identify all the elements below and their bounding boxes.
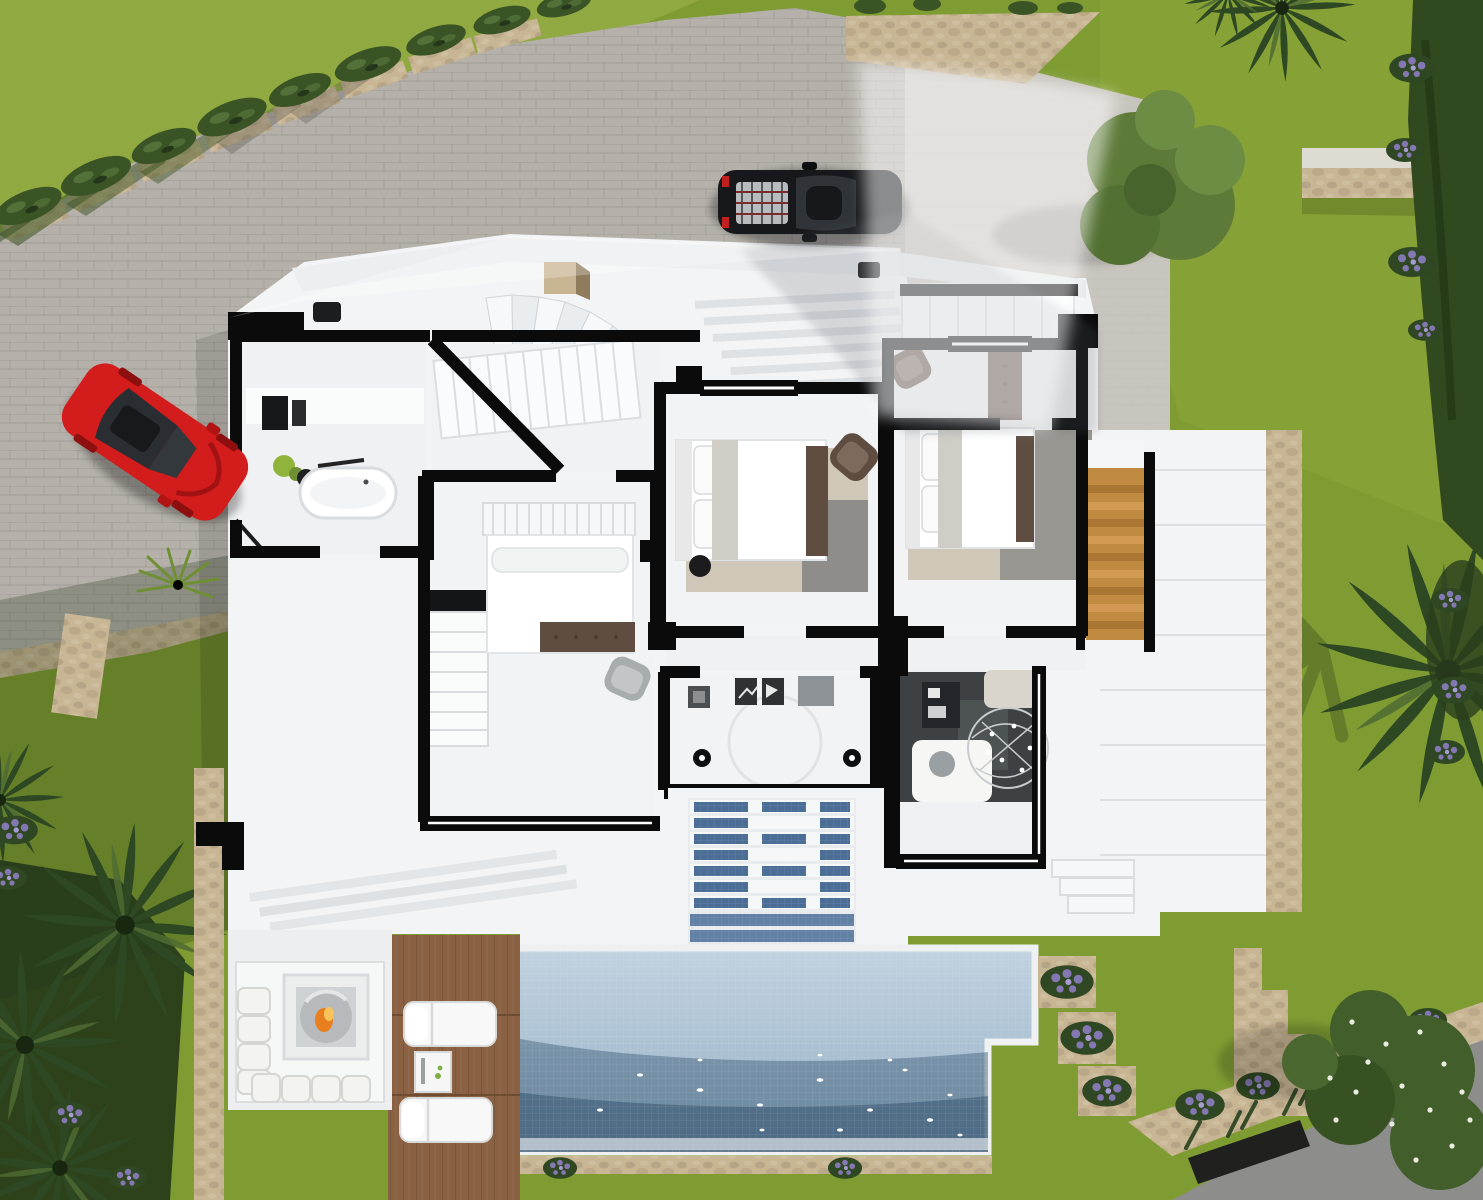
- foyer: [668, 674, 882, 790]
- black-car-mirror: [802, 162, 817, 170]
- lavender-bush: [1408, 319, 1442, 341]
- black-car-roof: [806, 186, 842, 220]
- tufted-footboard: [1016, 436, 1034, 542]
- master-bedroom: [420, 478, 654, 822]
- lavender-bush: [543, 1157, 577, 1179]
- fire-pit-platform: [228, 930, 392, 1110]
- side-pouf: [689, 555, 711, 577]
- tufted-footboard: [806, 446, 828, 556]
- console-table: [798, 676, 834, 706]
- sun-lounger: [400, 1098, 492, 1142]
- taillight: [722, 217, 729, 228]
- bolster-pillow: [492, 548, 628, 572]
- wall-shadow: [1302, 198, 1430, 216]
- pendant-lamp-inner: [693, 691, 705, 703]
- master-wardrobe: [420, 590, 488, 746]
- villa-render: Aerial top-down 3D render of a modern vi…: [0, 0, 1483, 1200]
- bedroom-a: [666, 388, 883, 626]
- pool-inner-ledge: [515, 1138, 988, 1150]
- tv-sideboard: [922, 682, 960, 728]
- lavender-bush: [828, 1157, 862, 1179]
- hallway: [666, 636, 1086, 670]
- lavender-bush: [1389, 54, 1435, 83]
- lavender-bush: [1386, 138, 1424, 162]
- lavender-bush: [109, 1166, 147, 1190]
- lavender-bush: [1388, 247, 1436, 277]
- deck-side-table: [415, 1052, 451, 1092]
- vanity-mirror: [292, 400, 306, 426]
- lavender-bush: [49, 1102, 91, 1128]
- lavender-bush: [1427, 740, 1465, 764]
- swimming-pool: [498, 948, 1035, 1179]
- sofa-cushion: [929, 751, 955, 777]
- lavender-bush: [1433, 677, 1475, 703]
- bathtub: [300, 468, 396, 518]
- cypress-top: [1057, 2, 1083, 14]
- stone-path-east-texture: [1266, 430, 1302, 912]
- lavender-bush: [1431, 588, 1469, 612]
- bed-b: [906, 428, 1034, 548]
- parapet-speaker: [313, 302, 341, 322]
- bed-a: [676, 440, 828, 560]
- fire-pit: [284, 975, 368, 1059]
- cypress-top: [1008, 1, 1038, 15]
- sun-lounger: [404, 1002, 496, 1046]
- bathroom: [236, 340, 426, 556]
- vanity-stool: [262, 396, 288, 430]
- knit-runner: [712, 440, 738, 560]
- knit-runner: [938, 428, 962, 548]
- stair-stringer: [1144, 452, 1155, 652]
- pool-mosaic: [515, 948, 1035, 1152]
- fire-flame-inner: [324, 1007, 334, 1021]
- taillight: [722, 176, 729, 187]
- canopy-bed: [483, 503, 635, 653]
- stone-wall-ne-texture: [1302, 168, 1430, 198]
- wooden-deck: [388, 935, 520, 1200]
- tile-grid: [690, 800, 854, 960]
